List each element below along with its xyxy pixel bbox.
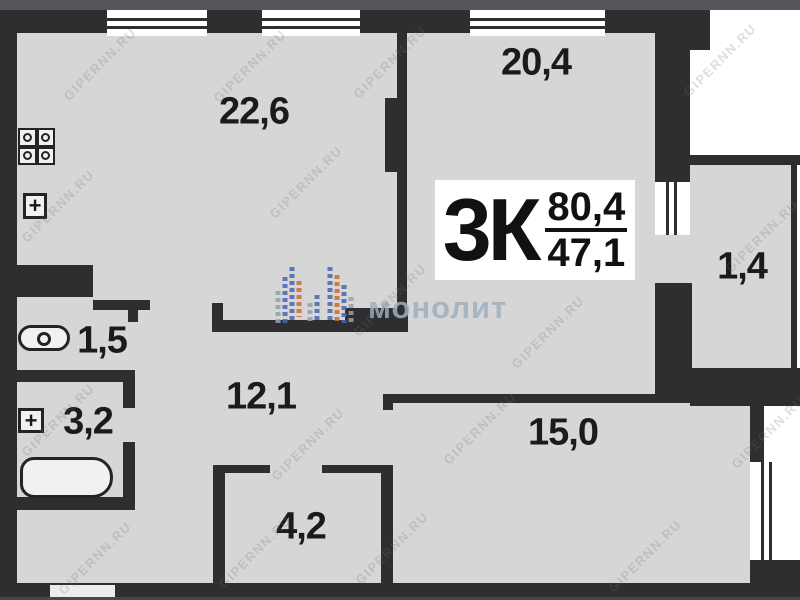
- window: [752, 462, 783, 560]
- sink-icon: [18, 325, 70, 351]
- window-pane-line: [107, 26, 207, 29]
- top-edge-strip: [0, 0, 800, 10]
- burner-icon: [18, 128, 37, 147]
- wall-segment: [17, 497, 135, 510]
- balcony-door-opening: [655, 235, 690, 283]
- wall-segment: [383, 394, 393, 410]
- room-area-label-wc: 1,5: [77, 320, 127, 363]
- burner-icon: [37, 147, 56, 166]
- wall-segment: [385, 98, 407, 172]
- burner-icon: [18, 147, 37, 166]
- window: [657, 182, 688, 235]
- room-area-label-hallway: 12,1: [226, 376, 296, 419]
- window-pane-line: [769, 462, 772, 560]
- wall-segment: [655, 10, 690, 182]
- window-pane-line: [674, 182, 677, 235]
- total-area-label: 80,4: [545, 187, 627, 232]
- room-area-label-bedroom-bottom: 15,0: [528, 412, 598, 455]
- monolit-logo-icon: [272, 261, 358, 327]
- wall-segment: [383, 394, 657, 403]
- window-pane-line: [107, 18, 207, 21]
- wall-segment: [0, 10, 17, 597]
- living-area-label: 47,1: [547, 232, 625, 274]
- wall-segment: [791, 160, 797, 368]
- bathtub-icon: [20, 457, 113, 498]
- window-pane-line: [666, 182, 669, 235]
- wall-segment: [17, 370, 135, 382]
- wall-segment: [750, 560, 800, 583]
- stove-icon: [18, 128, 55, 165]
- wall-segment: [212, 303, 223, 320]
- window-pane-line: [262, 18, 360, 21]
- window-pane-line: [470, 18, 605, 21]
- wall-segment: [128, 300, 138, 322]
- wall-segment: [655, 283, 692, 403]
- window-pane-line: [761, 462, 764, 560]
- window: [470, 10, 605, 36]
- wall-segment: [213, 465, 225, 583]
- wall-segment: [690, 155, 800, 165]
- floor-plan: + + 3К 80,4 47,1 22,6 20,4 1,4 1,5 3,2 1…: [0, 0, 800, 600]
- room-area-label-bedroom-top: 20,4: [501, 42, 571, 85]
- apartment-type-label: 3К: [443, 190, 538, 269]
- wall-segment: [123, 382, 135, 408]
- window-pane-line: [470, 26, 605, 29]
- wall-segment: [0, 265, 93, 297]
- area-fraction: 80,4 47,1: [545, 187, 627, 274]
- wall-segment: [0, 583, 800, 597]
- burner-icon: [37, 128, 56, 147]
- wall-segment: [93, 300, 150, 310]
- sink-basin-icon: [37, 332, 51, 346]
- wall-segment: [690, 368, 800, 406]
- room-fill-bedroom-bottom: [655, 403, 750, 583]
- wall-segment: [213, 465, 270, 473]
